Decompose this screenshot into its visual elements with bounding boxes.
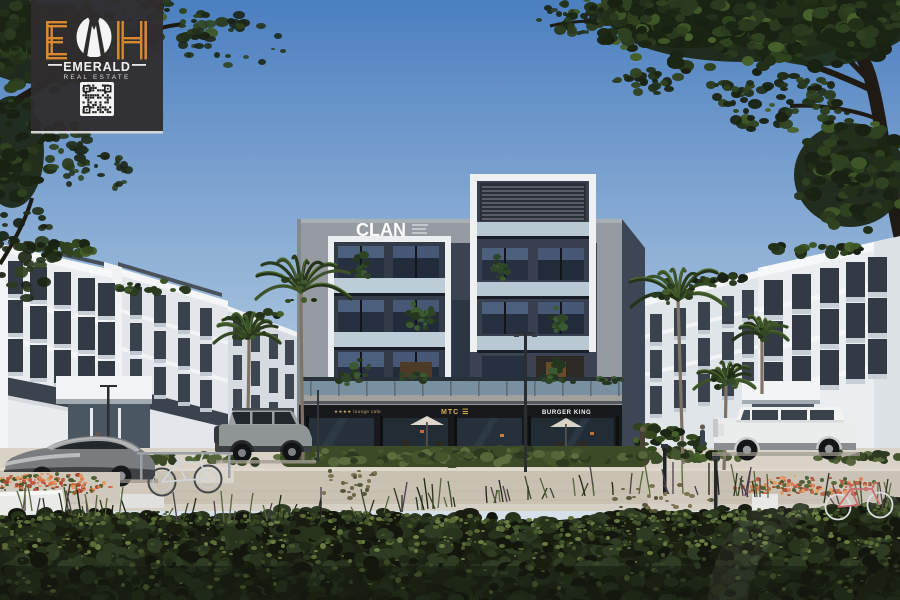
svg-text:★★★★ lounge cafe: ★★★★ lounge cafe (334, 409, 381, 414)
svg-text:MTC ☰: MTC ☰ (441, 409, 469, 416)
svg-text:BURGER KING: BURGER KING (542, 410, 591, 416)
